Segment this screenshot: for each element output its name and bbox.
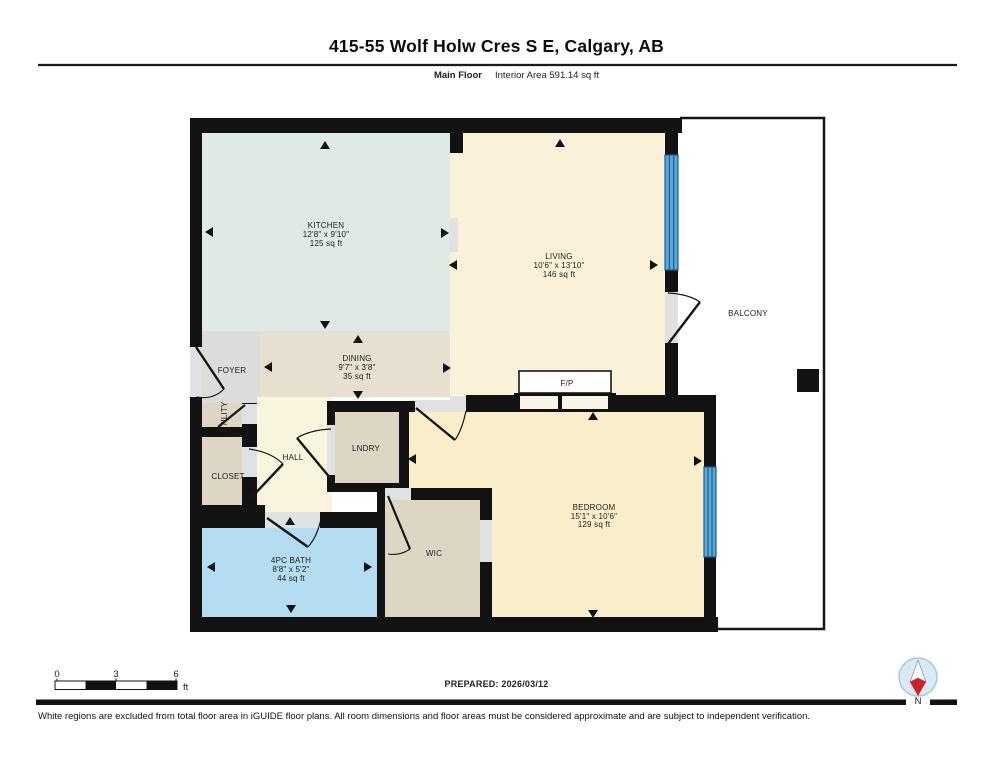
wall-kitchen-living-stub <box>450 133 463 153</box>
bath-dims: 8'8" x 5'2" <box>272 565 309 574</box>
bath-door-opening <box>265 512 320 528</box>
bedroom-window <box>704 467 716 557</box>
living-dims: 10'6" x 13'10" <box>533 261 584 270</box>
balcony-post <box>797 369 819 392</box>
utility-label: UTILITY <box>220 401 229 433</box>
fireplace-hearth-inner-left <box>520 396 558 409</box>
fireplace-label: F/P <box>560 379 573 388</box>
wall-laundry-right <box>399 401 409 492</box>
wall-living-right-a <box>665 133 678 155</box>
wall-bath-top-right <box>320 512 380 528</box>
room-fills <box>202 133 704 617</box>
fireplace-hearth-inner-right <box>562 396 608 409</box>
living-west-opening <box>450 396 466 410</box>
footer-divider-bar <box>36 700 957 706</box>
wall-top <box>190 118 682 133</box>
bath-label: 4PC BATH <box>271 556 311 565</box>
wall-left-upper <box>190 118 202 347</box>
north-label: N <box>915 696 922 707</box>
kitchen-living-opening <box>450 218 458 252</box>
wall-living-right-c <box>665 343 678 398</box>
page-title: 415-55 Wolf Holw Cres S E, Calgary, AB <box>0 36 993 57</box>
living-sqft: 146 sq ft <box>543 270 576 279</box>
bedroom-label: BEDROOM <box>573 503 616 512</box>
wall-bedroom-right-b <box>704 557 716 632</box>
balcony-label: BALCONY <box>728 309 768 318</box>
laundry-door-opening <box>327 425 335 475</box>
bath-sqft: 44 sq ft <box>277 574 305 583</box>
closet-label: CLOSET <box>211 472 244 481</box>
dining-sqft: 35 sq ft <box>343 372 371 381</box>
disclaimer-text: White regions are excluded from total fl… <box>38 711 938 722</box>
wall-living-right-b <box>665 270 678 292</box>
foyer-label: FOYER <box>218 366 247 375</box>
kitchen-sqft: 125 sq ft <box>310 239 343 248</box>
wic-bedroom-opening <box>480 520 492 562</box>
wall-bath-top-left <box>190 505 265 528</box>
living-label: LIVING <box>545 252 572 261</box>
kitchen-label: KITCHEN <box>308 221 345 230</box>
wall-bedroom-right-a <box>704 412 716 467</box>
bedroom-sqft: 129 sq ft <box>578 520 611 529</box>
wic-area <box>385 500 480 617</box>
hall-label: HALL <box>283 453 304 462</box>
kitchen-dims: 12'8" x 9'10" <box>303 230 349 239</box>
living-window <box>665 155 678 270</box>
dining-label: DINING <box>342 354 371 363</box>
floor-subtitle: Main Floor Interior Area 591.14 sq ft <box>20 70 993 81</box>
laundry-label: LNDRY <box>352 444 380 453</box>
dining-dims: 9'7" x 3'8" <box>338 363 375 372</box>
floor-plan-drawing: KITCHEN 12'8" x 9'10" 125 sq ft LIVING 1… <box>0 0 993 768</box>
wic-label: WIC <box>426 549 442 558</box>
floor-name: Main Floor <box>434 70 482 81</box>
closet-area <box>202 437 242 505</box>
wall-bottom <box>190 617 718 632</box>
floor-plan-page: KITCHEN 12'8" x 9'10" 125 sq ft LIVING 1… <box>0 0 993 768</box>
prepared-date: PREPARED: 2026/03/12 <box>0 679 993 689</box>
interior-area: Interior Area 591.14 sq ft <box>495 70 599 81</box>
